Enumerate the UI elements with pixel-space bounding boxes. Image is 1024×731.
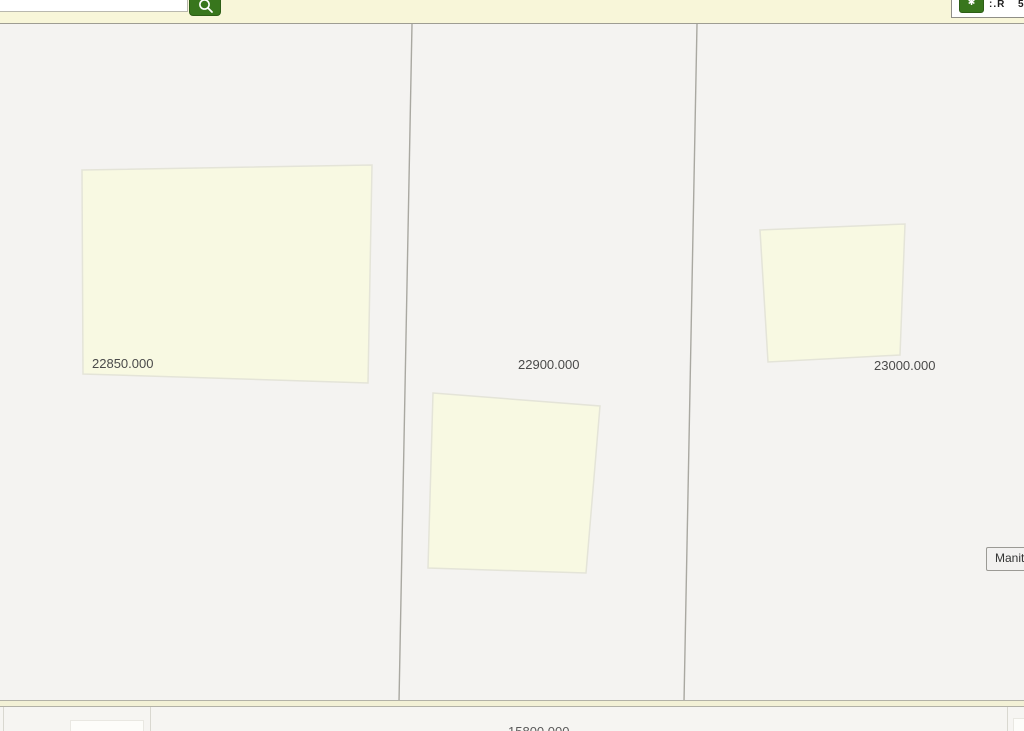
- parcel-label: 22900.000: [518, 357, 579, 372]
- parcel-label-partial: 15800.000: [508, 724, 569, 731]
- boundary-line: [399, 24, 412, 702]
- parcel-shape-22850[interactable]: [82, 165, 372, 383]
- parcel-shape-faint: [1013, 718, 1024, 731]
- parcel-label: 23000.000: [874, 358, 935, 373]
- search-input[interactable]: [0, 0, 188, 12]
- map-geometry: [0, 24, 1024, 731]
- search-button[interactable]: [189, 0, 221, 16]
- toolbar-panel: ✱ :.R 5: [951, 0, 1024, 18]
- boundary-line-faint: [3, 707, 4, 731]
- tool-button[interactable]: ✱: [959, 0, 984, 13]
- boundary-line: [684, 24, 697, 702]
- manitoba-label-button[interactable]: Manitoba: [986, 547, 1024, 571]
- cropped-icon-fragment: 5: [1018, 0, 1024, 10]
- search-icon: [198, 0, 214, 14]
- map-canvas[interactable]: 22850.000 22900.000 23000.000 15800.000 …: [0, 24, 1024, 731]
- top-toolbar: ✱ :.R 5: [0, 0, 1024, 24]
- parcel-shape-22900[interactable]: [428, 393, 600, 573]
- map-lower-area: 15800.000: [0, 707, 1024, 731]
- road-line: [0, 700, 1024, 707]
- tool-glyph-icon: ✱: [968, 0, 976, 7]
- cropped-icon-fragment: :.R: [989, 0, 1005, 10]
- parcel-label: 22850.000: [92, 356, 153, 371]
- boundary-line-faint: [150, 707, 151, 731]
- boundary-line-faint: [1007, 707, 1008, 731]
- parcel-shape-faint: [70, 720, 144, 731]
- parcel-shape-23000[interactable]: [760, 224, 905, 362]
